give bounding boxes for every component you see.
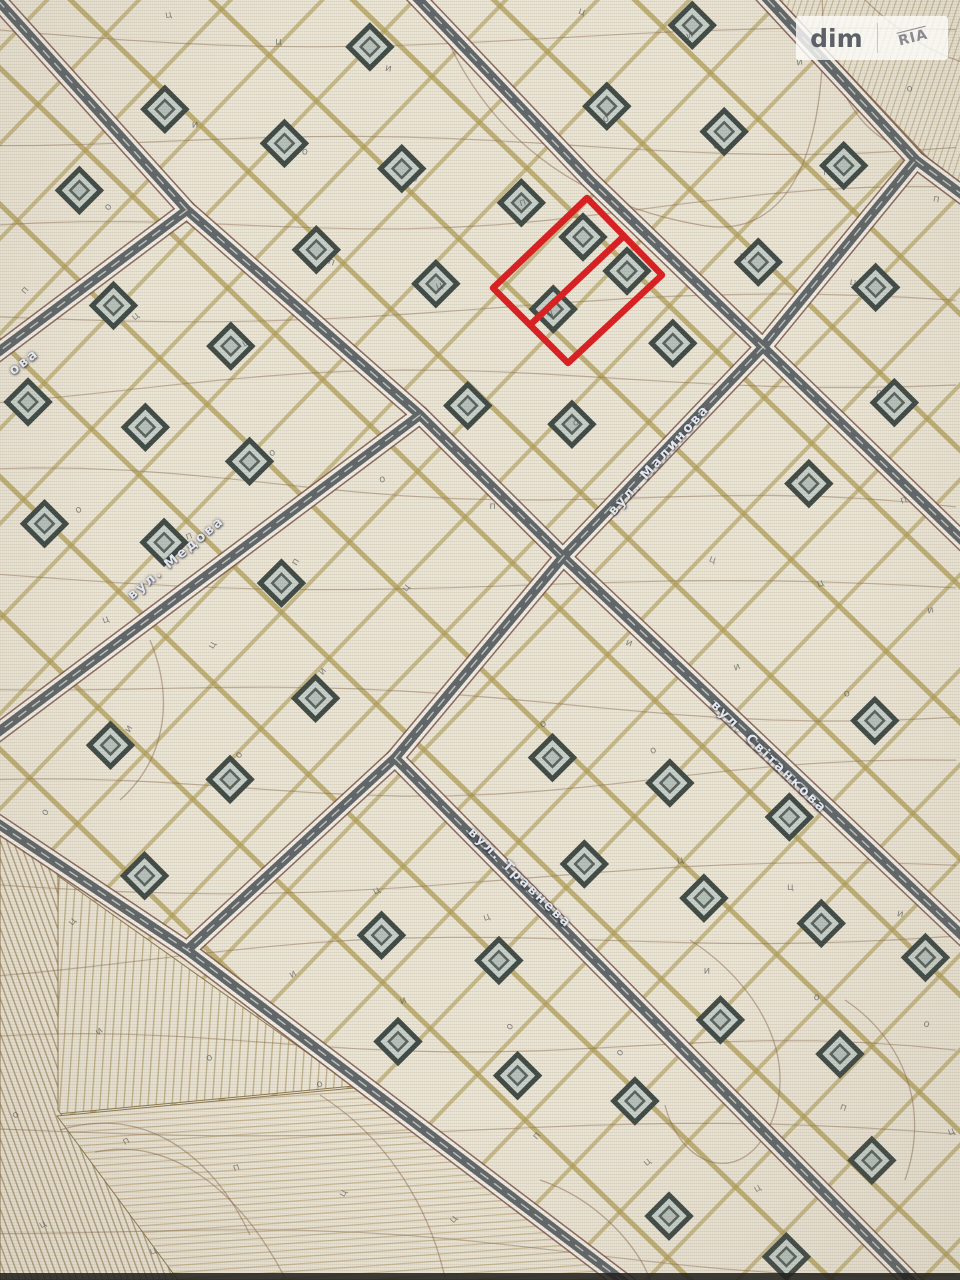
svg-text:о: о [573,417,579,428]
svg-text:п: п [823,167,830,178]
plot-map-screenshot: цпоиццоиоцпоццпоцпоиоицпоцоицоицпоцпооиц… [0,0,960,1280]
ria-logo-text: RIA [877,22,949,55]
svg-text:и: и [704,965,711,976]
photo-bottom-edge [0,1273,960,1280]
svg-text:п: п [489,501,496,512]
plot-map-canvas: цпоиццоиоцпоццпоцпоиоицпоцоицоицпоцпооиц… [0,0,960,1280]
svg-text:ц: ц [740,251,747,262]
svg-text:ц: ц [787,882,794,893]
svg-text:о: о [907,84,913,95]
dim-ria-watermark: dim RIA [796,16,948,60]
svg-text:и: и [192,120,199,131]
svg-text:ц: ц [275,36,282,47]
dim-logo-text: dim [796,24,877,53]
